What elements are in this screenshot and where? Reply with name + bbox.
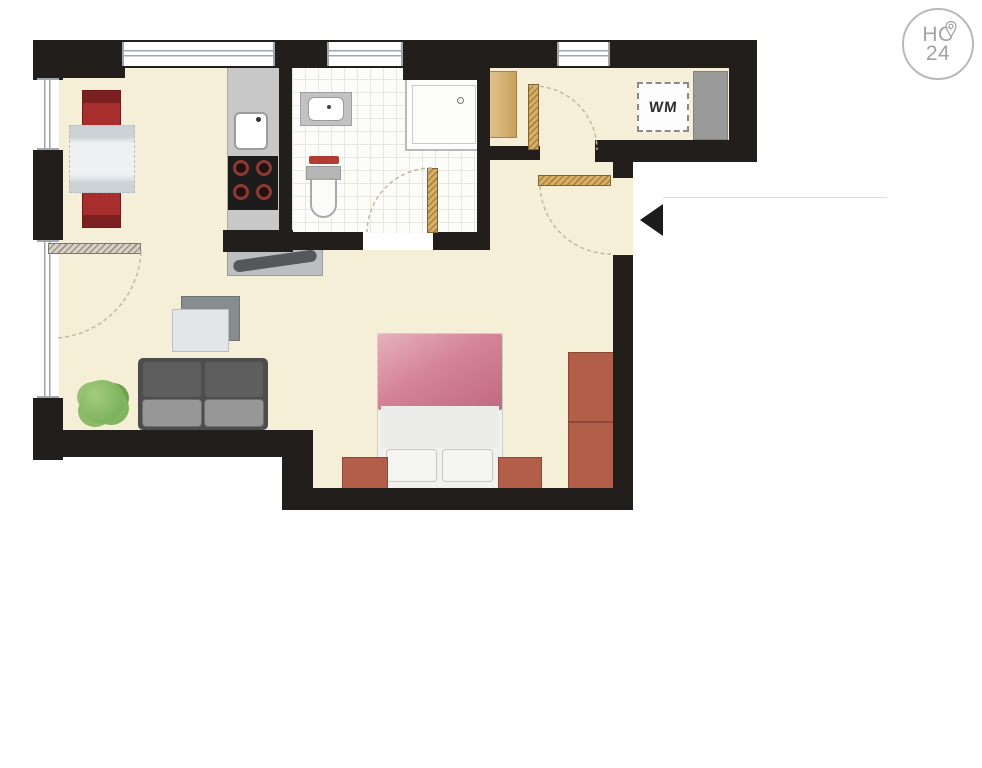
utility-block xyxy=(693,71,728,140)
sideboard-item xyxy=(233,249,318,273)
dining-table xyxy=(69,125,135,193)
wardrobe-divider xyxy=(569,421,614,423)
wall-segment xyxy=(282,430,313,510)
towel xyxy=(309,156,339,164)
entrance-arrow-icon xyxy=(640,204,663,236)
plant xyxy=(79,380,125,424)
wall-segment xyxy=(613,255,633,510)
pillow xyxy=(442,449,493,482)
wall-segment xyxy=(292,232,363,250)
burner xyxy=(256,160,272,176)
burner xyxy=(233,184,249,200)
bed-sheet xyxy=(381,406,499,448)
shower xyxy=(405,78,483,151)
window xyxy=(557,42,610,66)
wall-segment xyxy=(33,430,313,457)
entrance-door-leaf xyxy=(538,175,611,186)
bathroom-sink xyxy=(300,92,352,126)
masked-area xyxy=(663,197,887,252)
floor-entry-gap xyxy=(613,178,633,255)
wall-segment xyxy=(223,230,293,252)
wardrobe xyxy=(568,352,615,490)
chair-backrest xyxy=(83,91,120,103)
window xyxy=(122,42,275,66)
stove xyxy=(228,156,278,210)
toilet-bowl xyxy=(310,178,337,218)
hall-cabinet xyxy=(488,71,517,138)
wall-segment xyxy=(33,40,63,80)
kitchen-sink xyxy=(234,112,268,150)
window xyxy=(37,78,59,150)
chair-backrest xyxy=(83,215,120,227)
wall-segment xyxy=(279,66,292,233)
sofa-seat-cushion xyxy=(204,399,264,427)
faucet-icon xyxy=(256,117,261,122)
sofa-back-cushion xyxy=(143,362,201,397)
faucet-icon xyxy=(327,105,331,109)
nightstand-right xyxy=(498,457,542,490)
balcony-door-leaf xyxy=(48,243,141,254)
brand-badge: HC 24 xyxy=(902,8,974,80)
wall-segment xyxy=(433,232,490,250)
wall-segment xyxy=(613,162,633,178)
wall-segment xyxy=(313,488,633,510)
washing-machine-label: WM xyxy=(648,99,678,116)
shower-head-icon xyxy=(457,97,464,104)
brand-line2: 24 xyxy=(926,44,950,63)
sofa xyxy=(138,358,268,430)
pillow xyxy=(386,449,437,482)
window xyxy=(327,42,403,66)
bed-blanket xyxy=(378,334,502,410)
bed xyxy=(377,333,503,490)
sink-basin xyxy=(308,97,344,121)
wall-segment xyxy=(729,43,757,158)
bathroom-door-leaf xyxy=(427,168,438,233)
floor-plan: WM HC 24 xyxy=(0,0,982,768)
wall-segment xyxy=(403,66,488,80)
location-pin-icon xyxy=(945,21,957,38)
corridor-door-leaf xyxy=(528,84,539,150)
washing-machine: WM xyxy=(637,82,689,132)
burner xyxy=(233,160,249,176)
nightstand-left xyxy=(342,457,388,490)
shower-tray xyxy=(412,85,476,144)
burner xyxy=(256,184,272,200)
toilet xyxy=(306,166,341,218)
wall-segment xyxy=(33,150,63,240)
dining-chair-top xyxy=(82,90,121,128)
balcony-door-glazing xyxy=(37,240,59,398)
sofa-seat-cushion xyxy=(142,399,202,427)
coffee-table-light xyxy=(172,309,229,352)
sofa-back-cushion xyxy=(205,362,263,397)
